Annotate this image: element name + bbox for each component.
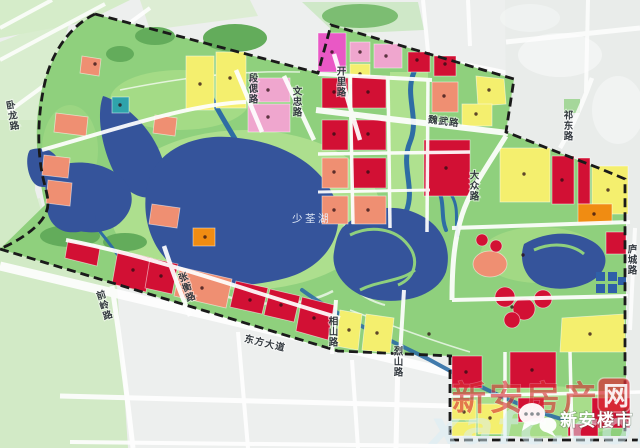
planning-map-screenshot: 卧龙路 段偲路 文忠路 开里路 魏武路 大众路 祁东路 前岭路 张衡路 东方大道… xyxy=(0,0,640,448)
watermark-net-char: 网 xyxy=(603,382,629,412)
road-label-kaili: 开里路 xyxy=(335,66,347,98)
road-label-duansi: 段偲路 xyxy=(247,72,260,104)
watermark: xafc.com 新安房产 网 新安楼市 xyxy=(428,378,640,448)
road-label-qidong: 祁东路 xyxy=(562,109,574,141)
road-label-wenzhong: 文忠路 xyxy=(291,85,304,117)
road-label-lieshan: 烈山路 xyxy=(392,345,404,377)
planning-map: 卧龙路 段偲路 文忠路 开里路 魏武路 大众路 祁东路 前岭路 张衡路 东方大道… xyxy=(0,0,640,448)
road-label-lucheng: 庐城路 xyxy=(626,243,638,275)
road-label-xiangshan: 相山路 xyxy=(327,315,339,347)
road-label-dazhong: 大众路 xyxy=(468,169,480,201)
lake-name-label: 少荃湖 xyxy=(292,212,331,225)
brand-name-text: 新安楼市 xyxy=(560,410,634,431)
